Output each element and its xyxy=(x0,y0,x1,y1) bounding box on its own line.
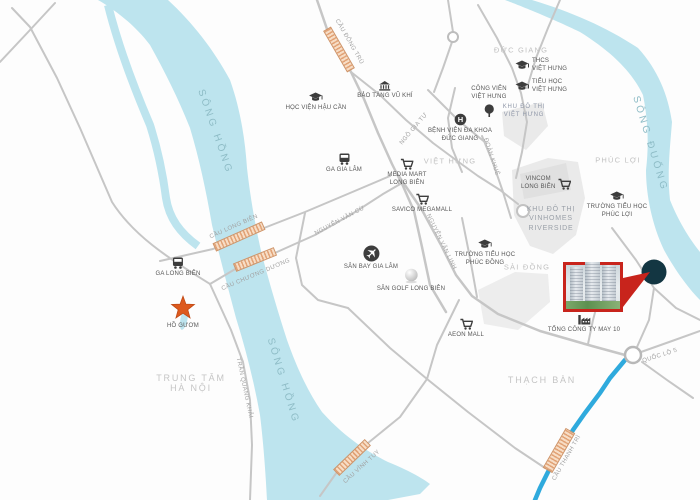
roundabout-small xyxy=(448,32,458,42)
poi-truong-th-phuc-dong: TRƯỜNG TIỂU HỌC PHÚC ĐỒNG xyxy=(455,239,516,268)
project-location-dot xyxy=(642,260,667,285)
airport-icon xyxy=(362,245,379,262)
area-trung-tam-ha-noi: TRUNG TÂM HÀ NỘI xyxy=(156,373,226,393)
poi-thcs-viet-hung: THCS VIỆT HƯNG xyxy=(515,58,567,74)
zone-label-kdt-viet-hung: KHU ĐÔ THỊ VIỆT HƯNG xyxy=(503,103,546,119)
tower xyxy=(570,267,583,301)
poi-savico-megamall: SAVICO MEGAMALL xyxy=(392,193,452,215)
train-station-icon xyxy=(337,153,350,165)
map-canvas: SÔNG HỒNG SÔNG HỒNG SÔNG ĐUỐNG CẦU ĐÔNG … xyxy=(0,0,700,500)
shopping-cart-icon xyxy=(460,318,473,330)
svg-text:H: H xyxy=(457,115,462,124)
shopping-cart-icon xyxy=(400,158,413,170)
graduation-cap-icon xyxy=(309,92,323,103)
train-station-icon xyxy=(172,257,185,269)
tower xyxy=(585,262,600,301)
star-icon xyxy=(170,295,196,321)
graduation-cap-icon xyxy=(610,191,624,202)
poi-ga-gia-lam: GA GIA LÂM xyxy=(326,153,362,175)
poi-san-golf-long-bien: SÂN GOLF LONG BIÊN xyxy=(377,268,445,294)
project-building-photo xyxy=(563,262,623,312)
golf-ball-icon xyxy=(402,268,419,284)
zone-label-vinhomes: KHU ĐÔ THỊ VINHOMES RIVERSIDE xyxy=(527,205,575,233)
graduation-cap-icon xyxy=(478,239,492,250)
poi-bao-tang-vu-khi: BẢO TÀNG VŨ KHÍ xyxy=(357,80,413,101)
area-phuc-loi: PHÚC LỢI xyxy=(595,156,641,165)
area-duc-giang: ĐỨC GIANG xyxy=(494,46,548,55)
shopping-cart-icon xyxy=(416,193,429,205)
poi-truong-th-phuc-loi: TRƯỜNG TIỂU HỌC PHÚC LỢI xyxy=(587,191,648,220)
poi-ho-guom: HỒ GƯƠM xyxy=(167,295,199,331)
poi-media-mart: MEDIA MART LONG BIÊN xyxy=(387,158,426,188)
hospital-icon: H xyxy=(454,113,467,126)
poi-ga-long-bien: GA LONG BIÊN xyxy=(155,257,200,279)
trees-strip xyxy=(566,301,620,309)
area-viet-hung: VIỆT HƯNG xyxy=(424,157,477,166)
roundabout-quoc-lo-5 xyxy=(625,347,641,363)
tower xyxy=(602,265,616,301)
graduation-cap-icon xyxy=(515,81,529,92)
poi-hoc-vien-hau-can: HỌC VIỆN HẬU CẦN xyxy=(286,92,347,113)
poi-tieu-hoc-viet-hung: TIỂU HỌC VIỆT HƯNG xyxy=(515,79,567,95)
poi-benh-vien-duc-giang: H BỆNH VIỆN ĐA KHOA ĐỨC GIANG xyxy=(428,113,492,144)
area-thach-ban: THẠCH BÀN xyxy=(508,375,576,385)
poi-vincom-long-bien: VINCOM LONG BIÊN xyxy=(521,176,571,192)
poi-may-10: TỔNG CÔNG TY MAY 10 xyxy=(548,313,620,335)
poi-aeon-mall: AEON MALL xyxy=(448,318,484,340)
shopping-cart-icon xyxy=(558,178,571,190)
museum-icon xyxy=(378,80,391,91)
graduation-cap-icon xyxy=(515,60,529,71)
factory-icon xyxy=(577,313,591,325)
